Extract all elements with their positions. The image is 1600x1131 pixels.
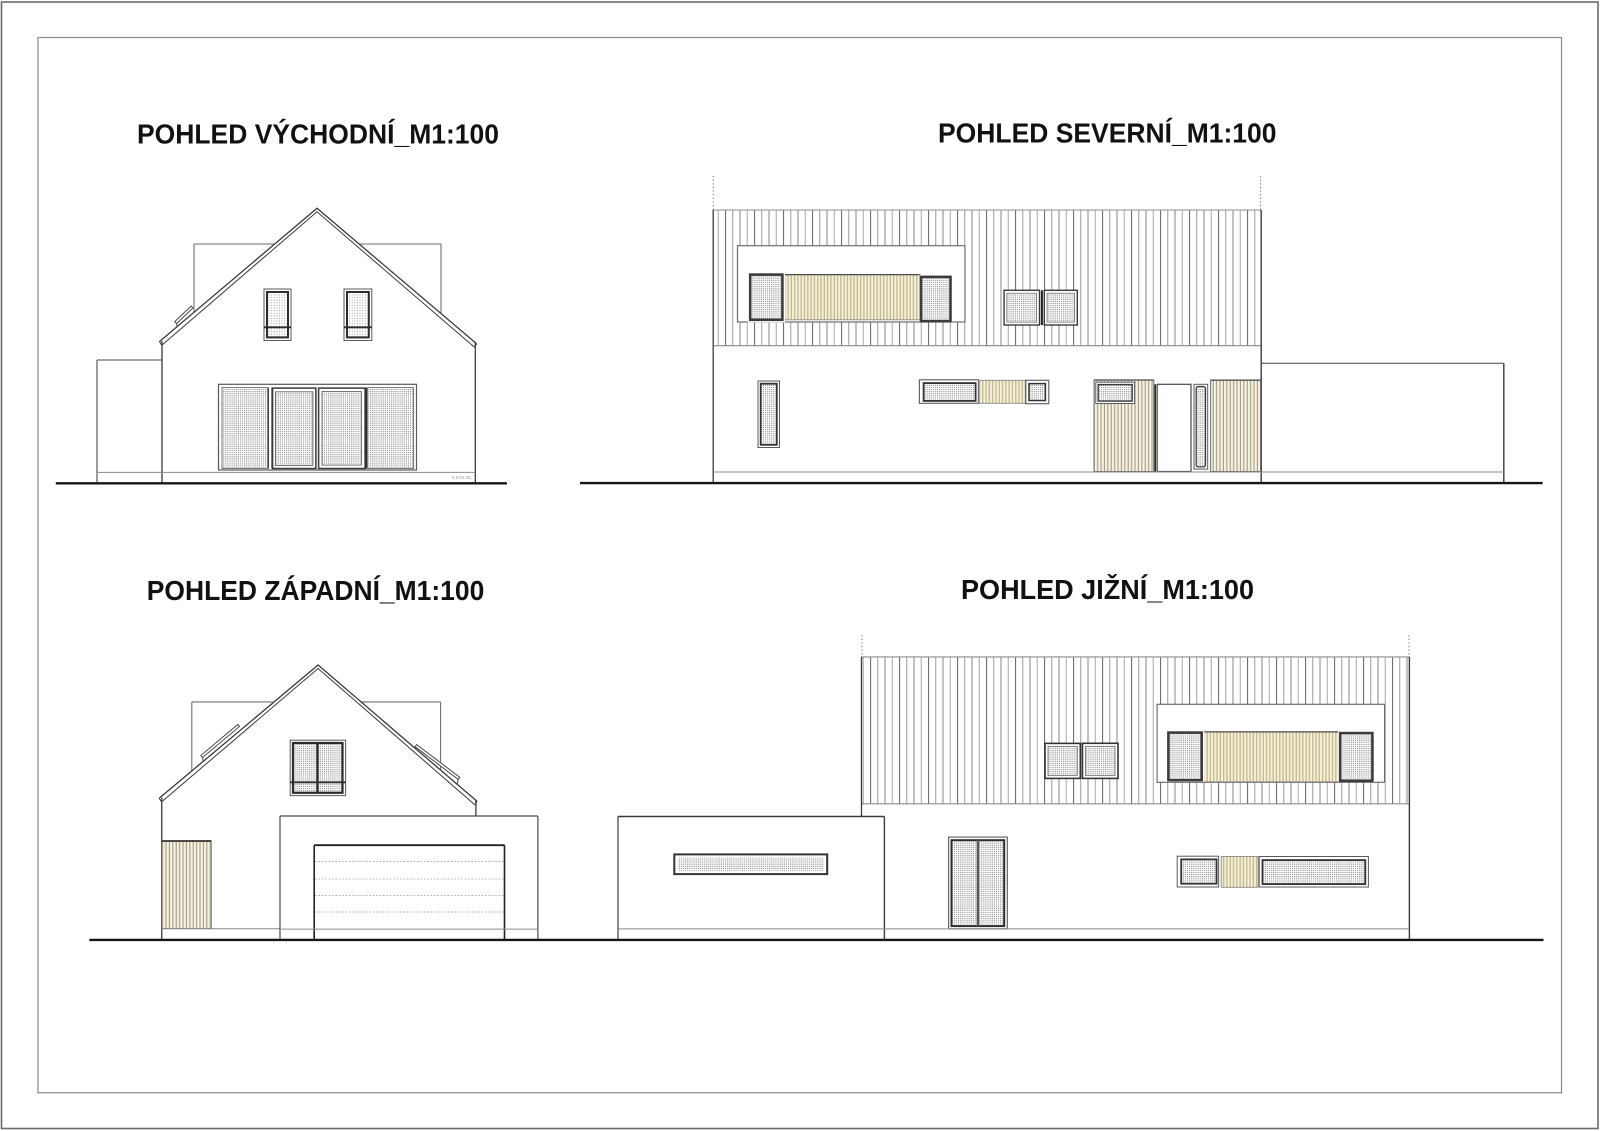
svg-text:POHLED ZÁPADNÍ_M1:100: POHLED ZÁPADNÍ_M1:100 xyxy=(147,575,485,606)
svg-text:0.5.01.05: 0.5.01.05 xyxy=(452,475,471,480)
svg-text:POHLED JIŽNÍ_M1:100: POHLED JIŽNÍ_M1:100 xyxy=(961,574,1254,605)
svg-text:POHLED SEVERNÍ_M1:100: POHLED SEVERNÍ_M1:100 xyxy=(938,118,1277,149)
svg-text:POHLED VÝCHODNÍ_M1:100: POHLED VÝCHODNÍ_M1:100 xyxy=(137,119,499,150)
